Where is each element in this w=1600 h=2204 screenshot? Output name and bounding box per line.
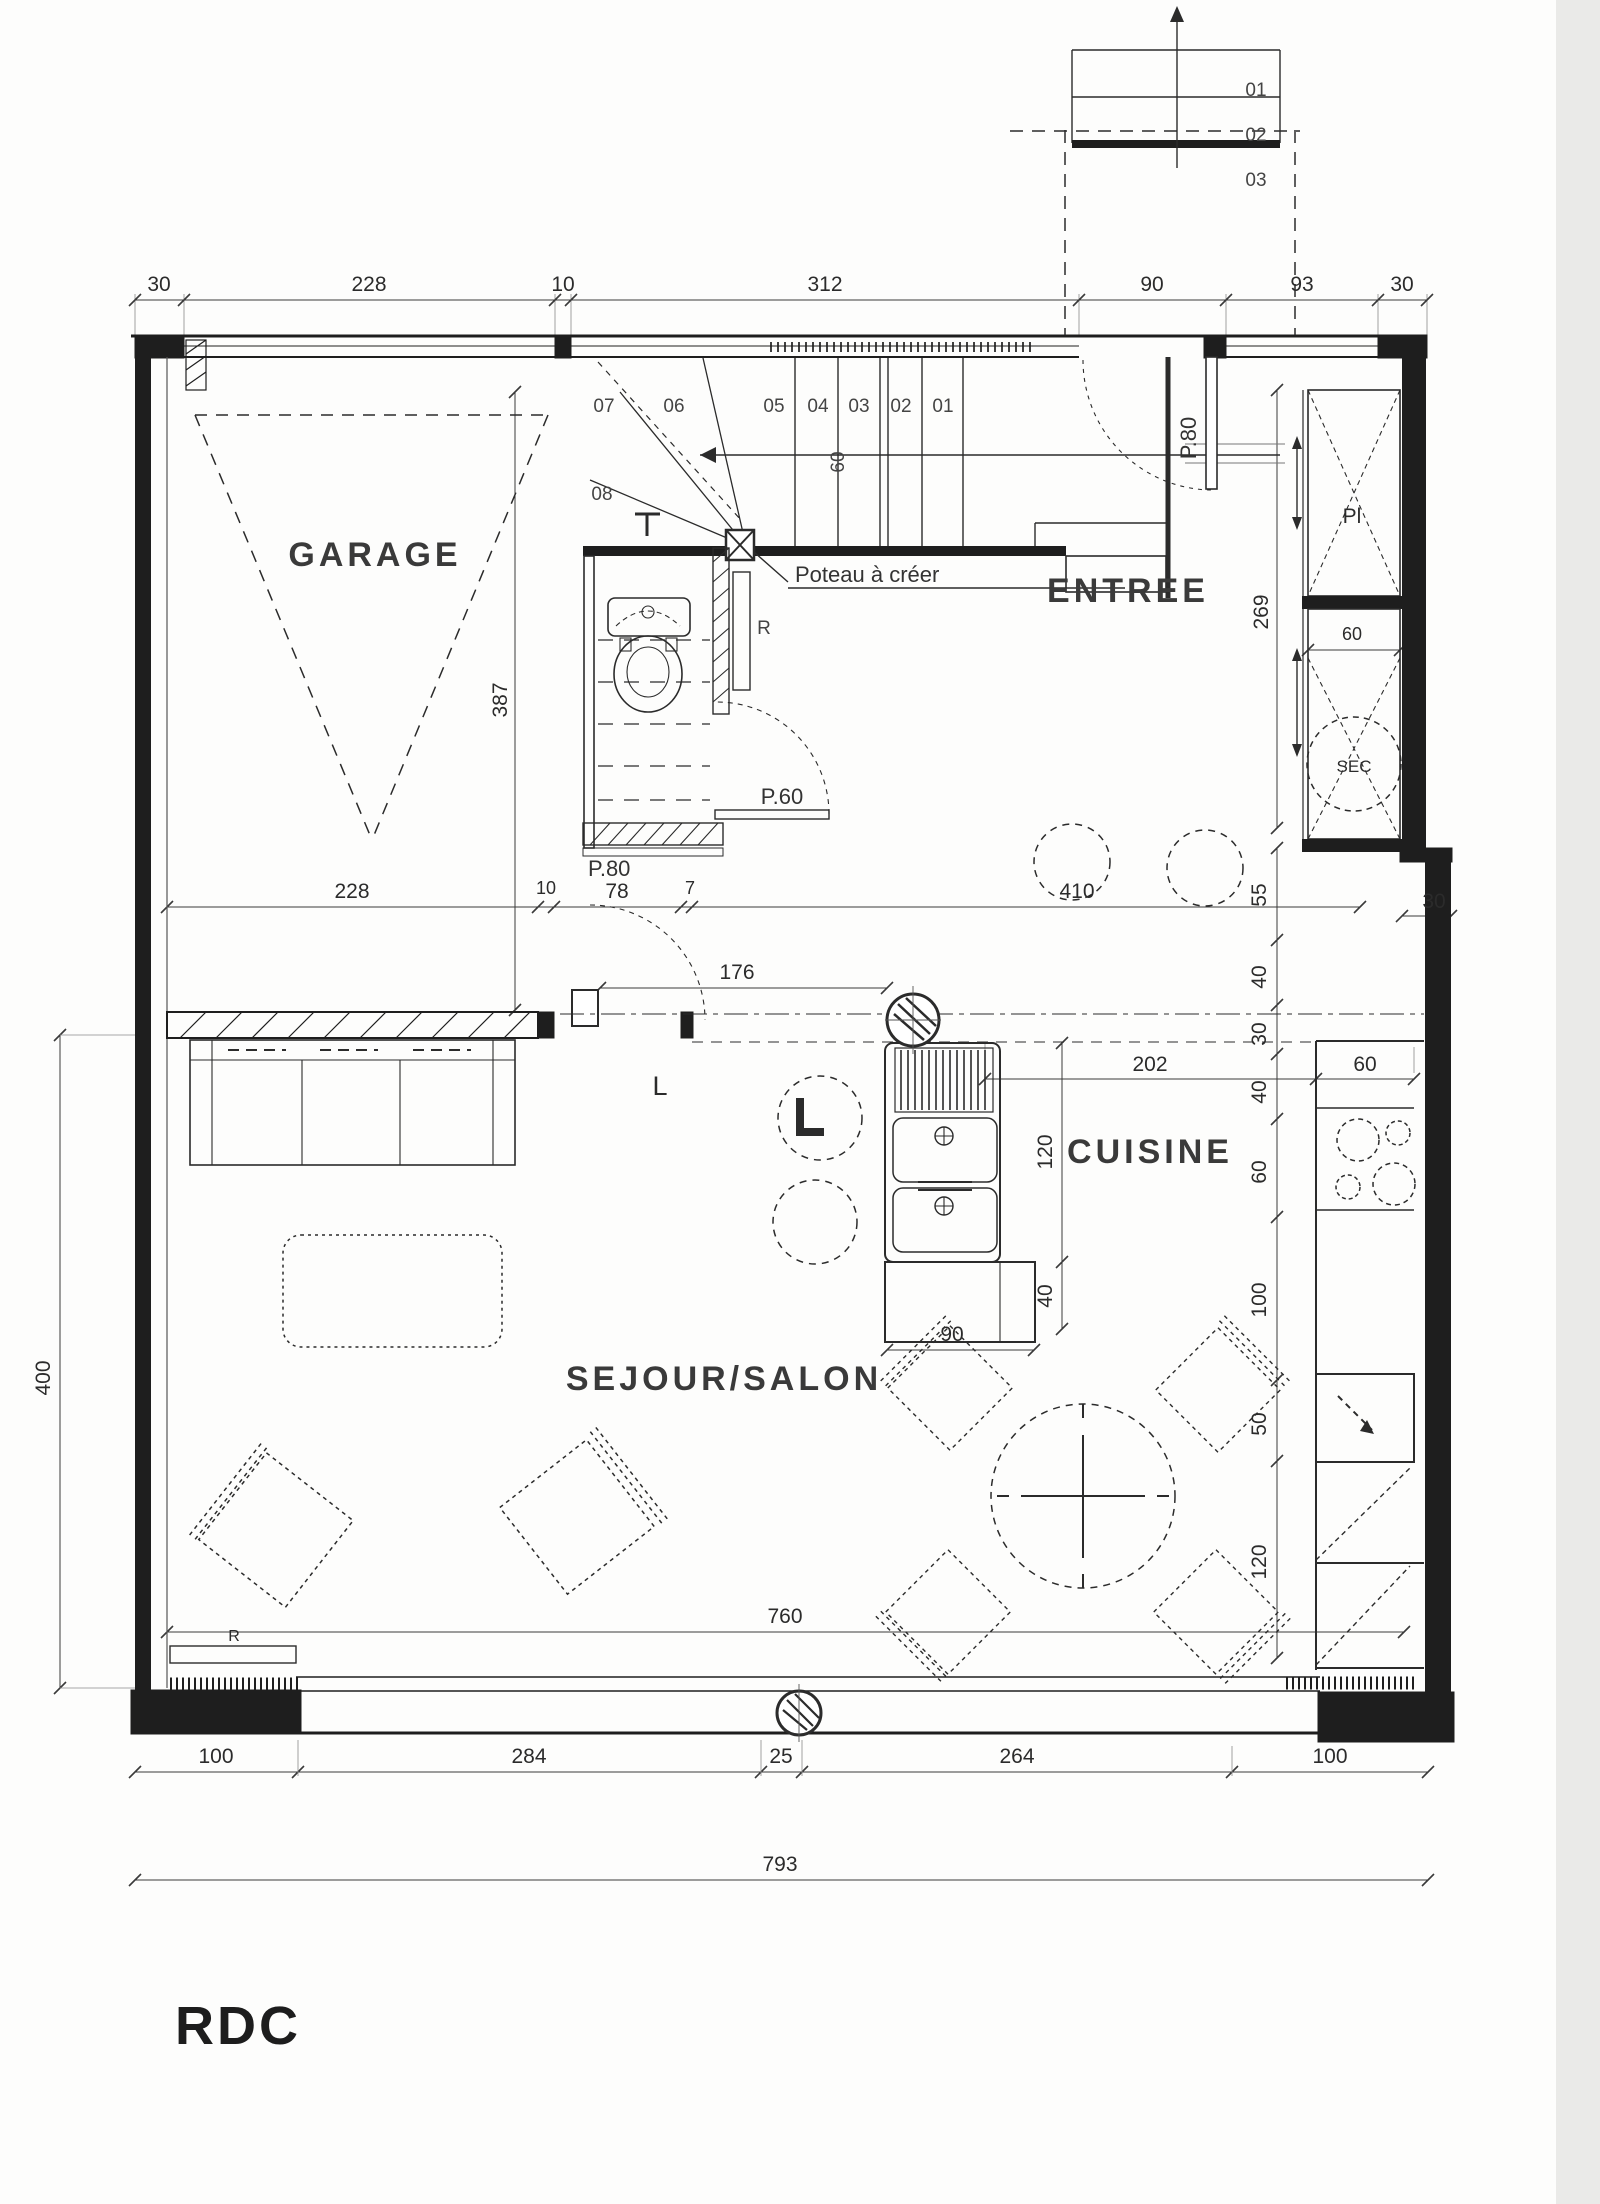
dim-right-wall: 30 (1422, 890, 1445, 913)
garage-features (195, 415, 548, 840)
door-label-p80-entry: P.80 (1176, 417, 1201, 459)
dim-top-4: 90 (1140, 273, 1163, 296)
dim-garage-depth: 387 (489, 682, 512, 717)
dim-mid-0: 228 (334, 880, 369, 903)
scan-edge (1556, 0, 1600, 2204)
stair-walk-width: 60 (828, 451, 849, 472)
dim-sejour-height: 400 (32, 1360, 55, 1395)
dim-mid-3: 7 (685, 878, 695, 898)
closet-label: Pl (1343, 505, 1362, 528)
dim-bottom-0: 100 (198, 1745, 233, 1768)
floor-label: RDC (175, 1996, 301, 2056)
dim-right-4: 60 (1248, 1160, 1271, 1183)
dim-kitchen-run: 202 (1132, 1053, 1167, 1076)
upper-step-02: 02 (1245, 125, 1266, 146)
floor-plan-drawing: GARAGE ENTREE CUISINE SEJOUR/SALON RDC 3… (0, 0, 1600, 2204)
dim-right-2: 30 (1248, 1022, 1271, 1045)
dim-bottom-3: 264 (999, 1745, 1034, 1768)
dim-right-5: 100 (1248, 1282, 1271, 1317)
dim-top-0: 30 (147, 273, 170, 296)
dimension-lines (54, 294, 1457, 1886)
dim-island-length: 120 (1034, 1134, 1057, 1169)
dim-top-1: 228 (351, 273, 386, 296)
dim-top-6: 30 (1390, 273, 1413, 296)
door-label-p80-hall: P.80 (588, 856, 630, 881)
dim-bottom-2: 25 (769, 1745, 792, 1768)
dim-mid-4: 410 (1059, 880, 1094, 903)
dim-right-0: 55 (1248, 883, 1271, 906)
stair-step-05: 05 (763, 396, 784, 417)
kitchen (560, 986, 1424, 1670)
dim-right-6: 50 (1248, 1412, 1271, 1435)
appliance-l-label: L (652, 1071, 667, 1101)
room-label-garage: GARAGE (288, 536, 461, 574)
upper-step-01: 01 (1245, 80, 1266, 101)
door-label-p60: P.60 (761, 784, 803, 809)
dim-counter-depth: 60 (1353, 1053, 1376, 1076)
dim-entree-depth: 269 (1250, 594, 1273, 629)
stair-step-01: 01 (932, 396, 953, 417)
dim-closet-width: 60 (1342, 624, 1362, 644)
stair-step-06: 06 (663, 396, 684, 417)
staircase (583, 6, 1300, 598)
dim-bottom-4: 100 (1312, 1745, 1347, 1768)
dim-hall-opening: 176 (719, 961, 754, 984)
upper-step-03: 03 (1245, 170, 1266, 191)
room-label-entree: ENTREE (1047, 572, 1209, 610)
stair-step-02: 02 (890, 396, 911, 417)
dim-bottom-1: 284 (511, 1745, 546, 1768)
radiator-sejour-label: R (228, 1628, 240, 1645)
dim-top-5: 93 (1290, 273, 1313, 296)
dim-top-3: 312 (807, 273, 842, 296)
floor-plan-page: GARAGE ENTREE CUISINE SEJOUR/SALON RDC 3… (0, 0, 1600, 2204)
dim-right-7: 120 (1248, 1544, 1271, 1579)
dim-island-return: 40 (1034, 1284, 1057, 1307)
dim-sejour-width: 760 (767, 1605, 802, 1628)
stair-step-04: 04 (807, 396, 829, 417)
dim-right-3: 40 (1248, 1080, 1271, 1103)
dim-top-2: 10 (551, 273, 574, 296)
note-poteau: Poteau à créer (795, 562, 939, 587)
dim-island-width: 90 (940, 1323, 963, 1346)
heater-label: SEC (1337, 757, 1372, 776)
dim-mid-1: 10 (536, 878, 556, 898)
stair-step-08: 08 (591, 484, 612, 505)
radiator-wc-label: R (757, 618, 771, 639)
dim-overall-width: 793 (762, 1853, 797, 1876)
room-label-sejour: SEJOUR/SALON (566, 1360, 882, 1398)
dim-right-1: 40 (1248, 965, 1271, 988)
stair-step-03: 03 (848, 396, 869, 417)
stair-step-07: 07 (593, 396, 614, 417)
room-label-cuisine: CUISINE (1067, 1133, 1233, 1171)
dim-mid-2: 78 (605, 880, 628, 903)
